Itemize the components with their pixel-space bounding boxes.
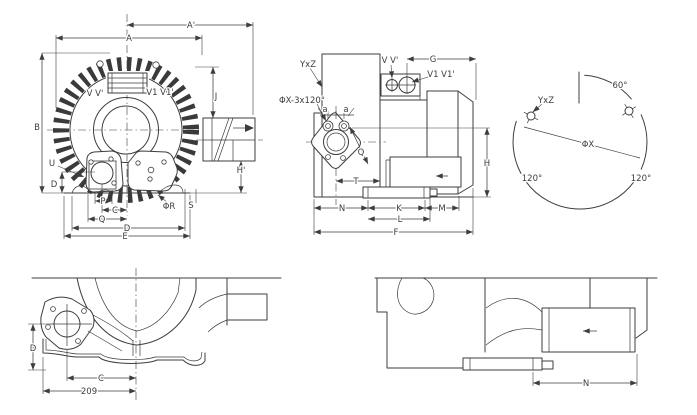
dim-label-L: L [398,215,403,225]
flange-hole [89,160,93,164]
bottom-left-view: D C 209 [28,268,281,400]
flange-hole [76,339,81,344]
bolt-hole [326,155,331,160]
dim-label-a-left: a [322,105,327,115]
pipe-fillet-curves [199,294,227,332]
screw-boss-left [97,61,103,67]
angle-label-120-left: 120° [522,174,542,184]
dim-label-M: M [438,204,445,214]
side-view: YxZ ΦX-3x120° V V' V1 V1' G a a Q T N K … [279,54,491,238]
bottom-right-view: N [375,278,657,389]
dim-label-A-prime: A' [187,21,195,31]
dim-label-YxZ: YxZ [537,96,554,106]
leader-phi-R [158,195,167,202]
dim-label-Q: Q [358,148,365,158]
bolt-hole-a1 [326,124,331,129]
port-label-V1: V1 V1' [146,88,173,98]
dim-label-Q: Q [99,215,106,225]
dim-label-G: G [430,55,437,65]
engineering-drawing-page: A' A B J H' U D V V' V1 V1' P C Q D E ΦR… [0,0,697,415]
muffler-bracket [383,160,390,187]
silencer-pipe-bottom [463,358,542,370]
dim-label-phi-R: ΦR [163,202,176,212]
bottom-silencer-pipe [363,187,430,198]
leader-YxZ [310,68,322,87]
dim-label-U: U [49,159,55,169]
engineering-drawing-canvas: A' A B J H' U D V V' V1 V1' P C Q D E ΦR… [0,0,697,415]
flange-center-hole [148,167,154,173]
silencer-pipe-cap [542,361,553,369]
dim-label-N: N [339,204,345,214]
dim-label-H-prime: H' [237,166,246,176]
muffler-box-bottom [542,308,635,352]
bolt-hole-left [527,112,535,120]
dim-label-S: S [188,201,193,211]
dim-label-C: C [112,206,118,216]
dim-label-T: T [352,177,359,187]
screw-boss-right [153,62,159,68]
left-port-face [89,161,116,189]
dim-label-B: B [34,123,40,133]
center-seam-lines [133,340,140,356]
flange-hole [109,157,113,161]
dim-label-H: H [484,159,490,169]
flange-hole [82,309,87,314]
outlet-pipe [203,118,255,161]
inlet-flange-plate [312,113,361,169]
hole-tick-marks [524,104,636,123]
bolt-hole-right [625,107,633,115]
flange-hole [162,160,166,164]
silencer-pipe-cap [430,189,437,196]
dim-label-phi-X: ΦX [582,140,595,150]
dim-label-D-bottom: D [30,344,37,354]
flange-hole [112,181,116,185]
flange-hole [46,325,51,330]
dim-label-N-bottom: N [583,379,589,389]
angle-label-120-right: 120° [631,174,651,184]
body-left-outline [377,278,463,368]
dim-label-209: 209 [81,387,97,397]
dim-label-YxZ: YxZ [299,60,316,70]
flange-hole [51,307,56,312]
dim-label-phiX-pattern: ΦX-3x120° [279,96,325,106]
dim-label-E: E [122,232,127,242]
port-label-V1: V1 V1' [427,70,454,80]
flange-hole [136,161,140,165]
dim-label-P: P [100,197,105,207]
outlet-pipe-bottom [227,278,267,325]
port-label-V: V V' [382,56,399,66]
bolt-hole [341,156,346,161]
dim-label-F: F [394,228,399,238]
casting-window [397,278,433,314]
front-view: A' A B J H' U D V V' V1 V1' P C Q D E ΦR… [34,14,263,242]
bolt-circle-view: 60° YxZ ΦX 120° 120° [513,72,651,209]
dim-label-a-right: a [343,105,348,115]
dim-label-J: J [214,92,218,102]
dim-label-D-left: D [51,180,58,190]
dim-label-C-bottom: C [98,374,104,384]
port-label-V: V V' [87,89,104,99]
bolt-hole-a2 [342,124,347,129]
dim-label-K: K [396,204,402,214]
dim-label-A: A [126,34,132,44]
duct-curves [486,298,542,345]
side-muffler-box [390,157,461,187]
angle-label-60: 60° [612,81,627,91]
flange-hole [148,177,152,181]
